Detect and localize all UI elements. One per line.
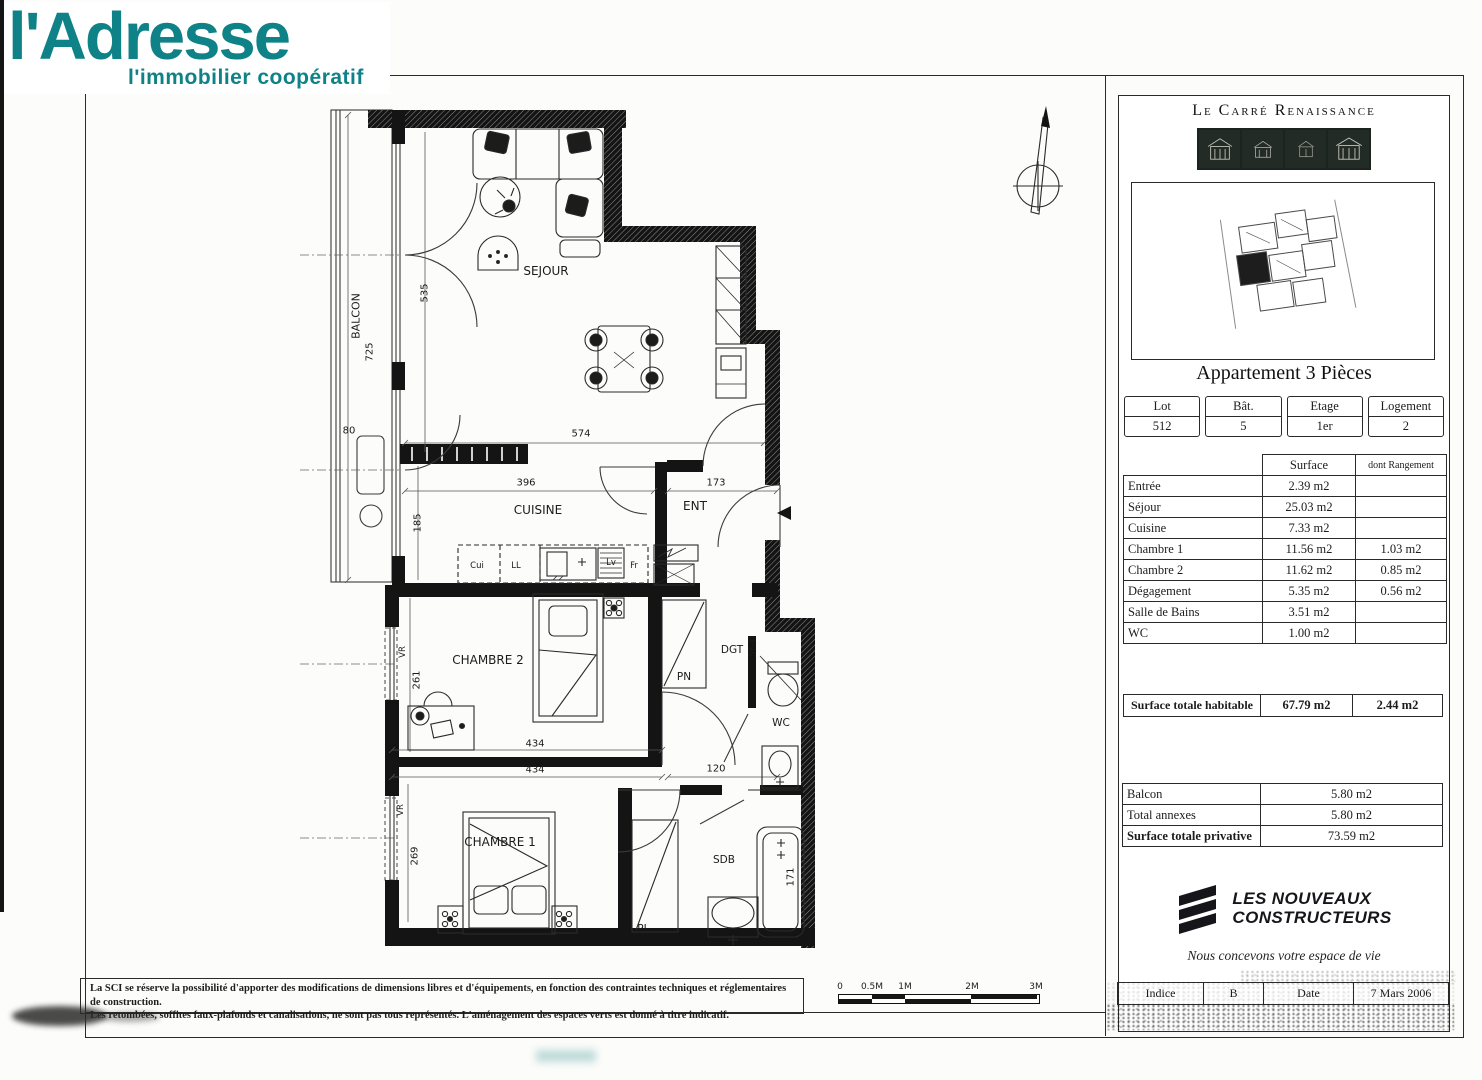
lot-header: Logement bbox=[1369, 397, 1443, 417]
room-label-sejour: SEJOUR bbox=[523, 264, 568, 278]
builder-tagline: Nous concevons votre espace de vie bbox=[1119, 948, 1449, 964]
project-title: Le Carré Renaissance bbox=[1119, 102, 1449, 120]
disclaimer-text: La SCI se réserve la possibilité d'appor… bbox=[90, 982, 795, 1023]
closet-label-pn: PN bbox=[677, 671, 691, 683]
room-label-chambre2: CHAMBRE 2 bbox=[452, 653, 524, 667]
scale-bar-graphic bbox=[838, 994, 1040, 1004]
room-surface: 3.51 m2 bbox=[1263, 602, 1356, 623]
room-surface: 5.35 m2 bbox=[1263, 581, 1356, 602]
room-surface: 25.03 m2 bbox=[1263, 497, 1356, 518]
room-rangement bbox=[1356, 518, 1447, 539]
annex-label: Balcon bbox=[1122, 783, 1261, 805]
room-rangement bbox=[1356, 476, 1447, 497]
room-name: Salle de Bains bbox=[1124, 602, 1263, 623]
annex-value: 5.80 m2 bbox=[1260, 783, 1443, 805]
builder-name-line2: CONSTRUCTEURS bbox=[1232, 909, 1391, 928]
lot-header: Lot bbox=[1125, 397, 1199, 417]
room-label-balcon: BALCON bbox=[350, 293, 363, 339]
lot-header: Bât. bbox=[1206, 397, 1280, 417]
room-name: WC bbox=[1124, 623, 1263, 644]
scale-tick-label: 0 bbox=[837, 982, 843, 992]
table-row: Salle de Bains 3.51 m2 bbox=[1124, 602, 1447, 623]
lot-cell: Etage 1er bbox=[1287, 396, 1363, 437]
appliance-ll: LL bbox=[511, 561, 520, 571]
room-rangement: 0.56 m2 bbox=[1356, 581, 1447, 602]
disclaimer-line1: La SCI se réserve la possibilité d'appor… bbox=[90, 982, 795, 1009]
disclaimer-line2: Les retombées, soffites faux-plafonds et… bbox=[90, 1009, 795, 1023]
room-rangement: 1.03 m2 bbox=[1356, 539, 1447, 560]
total-habitable-row: Surface totale habitable 67.79 m2 2.44 m… bbox=[1123, 694, 1443, 717]
scan-teal-mark bbox=[536, 1050, 596, 1062]
scale-bar-labels: 0 0.5M 1M 2M 3M bbox=[838, 982, 1040, 993]
room-rangement bbox=[1356, 497, 1447, 518]
building-photo bbox=[1328, 130, 1369, 168]
lot-value: 512 bbox=[1125, 417, 1199, 436]
scan-noise-band bbox=[1106, 982, 1454, 1006]
total-rangement: 2.44 m2 bbox=[1352, 694, 1443, 717]
table-row: Séjour 25.03 m2 bbox=[1124, 497, 1447, 518]
room-surface: 11.56 m2 bbox=[1263, 539, 1356, 560]
dim-185: 185 bbox=[413, 513, 424, 532]
room-label-cuisine: CUISINE bbox=[514, 503, 562, 517]
table-row: Dégagement 5.35 m2 0.56 m2 bbox=[1124, 581, 1447, 602]
apartment-title: Appartement 3 Pièces bbox=[1119, 362, 1449, 385]
surface-col-header: Surface bbox=[1263, 455, 1356, 476]
room-name: Chambre 2 bbox=[1124, 560, 1263, 581]
table-row: Entrée 2.39 m2 bbox=[1124, 476, 1447, 497]
agency-logo-name: l'Adresse bbox=[8, 2, 364, 72]
builder-logo: LES NOUVEAUX CONSTRUCTEURS bbox=[1119, 882, 1449, 936]
agency-logo-tagline: l'immobilier coopératif bbox=[128, 66, 364, 90]
scale-tick-label: 2M bbox=[965, 982, 979, 992]
table-row: Chambre 1 11.56 m2 1.03 m2 bbox=[1124, 539, 1447, 560]
lot-value: 1er bbox=[1288, 417, 1362, 436]
scale-tick-label: 3M bbox=[1029, 982, 1043, 992]
annex-value: 5.80 m2 bbox=[1260, 804, 1443, 826]
room-surface: 1.00 m2 bbox=[1263, 623, 1356, 644]
building-photo bbox=[1285, 130, 1326, 168]
room-label-dgt: DGT bbox=[721, 644, 743, 656]
builder-logo-icon bbox=[1176, 882, 1222, 936]
lot-cell: Bât. 5 bbox=[1205, 396, 1281, 437]
annex-table: Balcon 5.80 m2 Total annexes 5.80 m2 Sur… bbox=[1123, 784, 1443, 847]
dim-725: 725 bbox=[365, 342, 376, 361]
appliance-lv: Lv bbox=[606, 558, 616, 568]
building-photo bbox=[1199, 130, 1240, 168]
dim-434-a: 434 bbox=[525, 739, 544, 750]
room-name: Entrée bbox=[1124, 476, 1263, 497]
dim-120: 120 bbox=[706, 764, 725, 775]
shutter-vr-2: VR bbox=[396, 804, 406, 816]
dim-80: 80 bbox=[343, 426, 356, 437]
room-name: Cuisine bbox=[1124, 518, 1263, 539]
dim-173: 173 bbox=[706, 478, 725, 489]
room-label-wc: WC bbox=[772, 717, 790, 729]
dim-261: 261 bbox=[412, 670, 423, 689]
table-row: Chambre 2 11.62 m2 0.85 m2 bbox=[1124, 560, 1447, 581]
lot-header: Etage bbox=[1288, 397, 1362, 417]
room-rangement bbox=[1356, 623, 1447, 644]
dim-396: 396 bbox=[516, 478, 535, 489]
annex-label: Total annexes bbox=[1122, 804, 1261, 826]
info-panel: Le Carré Renaissance bbox=[1118, 95, 1450, 1032]
annex-label: Surface totale privative bbox=[1122, 825, 1261, 847]
annex-value: 73.59 m2 bbox=[1260, 825, 1443, 847]
dim-535: 535 bbox=[420, 283, 431, 302]
total-surface: 67.79 m2 bbox=[1260, 694, 1353, 717]
scale-tick-label: 1M bbox=[898, 982, 912, 992]
room-label-sdb: SDB bbox=[713, 854, 735, 866]
room-rangement bbox=[1356, 602, 1447, 623]
scale-tick-label: 0.5M bbox=[861, 982, 883, 992]
room-surface: 2.39 m2 bbox=[1263, 476, 1356, 497]
lot-value: 2 bbox=[1369, 417, 1443, 436]
dim-171: 171 bbox=[786, 867, 797, 886]
total-label: Surface totale habitable bbox=[1123, 694, 1261, 717]
table-row: WC 1.00 m2 bbox=[1124, 623, 1447, 644]
room-name: Séjour bbox=[1124, 497, 1263, 518]
closet-label-pi: PI bbox=[637, 923, 646, 935]
room-name: Dégagement bbox=[1124, 581, 1263, 602]
appliance-cui: Cui bbox=[470, 561, 484, 571]
building-photo bbox=[1242, 130, 1283, 168]
scan-smudge bbox=[100, 1012, 160, 1022]
site-plan-thumbnail bbox=[1131, 182, 1435, 360]
scale-bar: 0 0.5M 1M 2M 3M bbox=[838, 982, 1040, 1004]
scan-edge-artifact bbox=[0, 0, 4, 912]
agency-logo: l'Adresse l'immobilier coopératif bbox=[4, 2, 390, 94]
lot-cell: Logement 2 bbox=[1368, 396, 1444, 437]
project-photos-banner bbox=[1197, 128, 1371, 170]
room-surface: 11.62 m2 bbox=[1263, 560, 1356, 581]
room-label-ent: ENT bbox=[683, 499, 707, 513]
panel-separator bbox=[1105, 75, 1106, 1036]
lot-value: 5 bbox=[1206, 417, 1280, 436]
scan-smudge bbox=[12, 1006, 107, 1026]
scan-noise-band bbox=[1106, 1004, 1454, 1030]
dim-269: 269 bbox=[410, 846, 421, 865]
builder-name-line1: LES NOUVEAUX bbox=[1232, 890, 1391, 909]
appliance-fr: Fr bbox=[630, 561, 638, 571]
room-surface: 7.33 m2 bbox=[1263, 518, 1356, 539]
dim-574: 574 bbox=[571, 429, 590, 440]
table-row: Cuisine 7.33 m2 bbox=[1124, 518, 1447, 539]
room-rangement: 0.85 m2 bbox=[1356, 560, 1447, 581]
shutter-vr-1: VR bbox=[398, 646, 408, 658]
lot-info-table: Lot 512 Bât. 5 Etage 1er Logement 2 bbox=[1124, 396, 1444, 437]
rangement-col-header: dont Rangement bbox=[1356, 455, 1447, 476]
room-label-chambre1: CHAMBRE 1 bbox=[464, 835, 536, 849]
dim-564: 564 bbox=[748, 638, 759, 657]
surface-table: Surface dont Rangement Entrée 2.39 m2 Sé… bbox=[1123, 454, 1447, 644]
lot-cell: Lot 512 bbox=[1124, 396, 1200, 437]
dim-434-b: 434 bbox=[525, 765, 544, 776]
room-name: Chambre 1 bbox=[1124, 539, 1263, 560]
